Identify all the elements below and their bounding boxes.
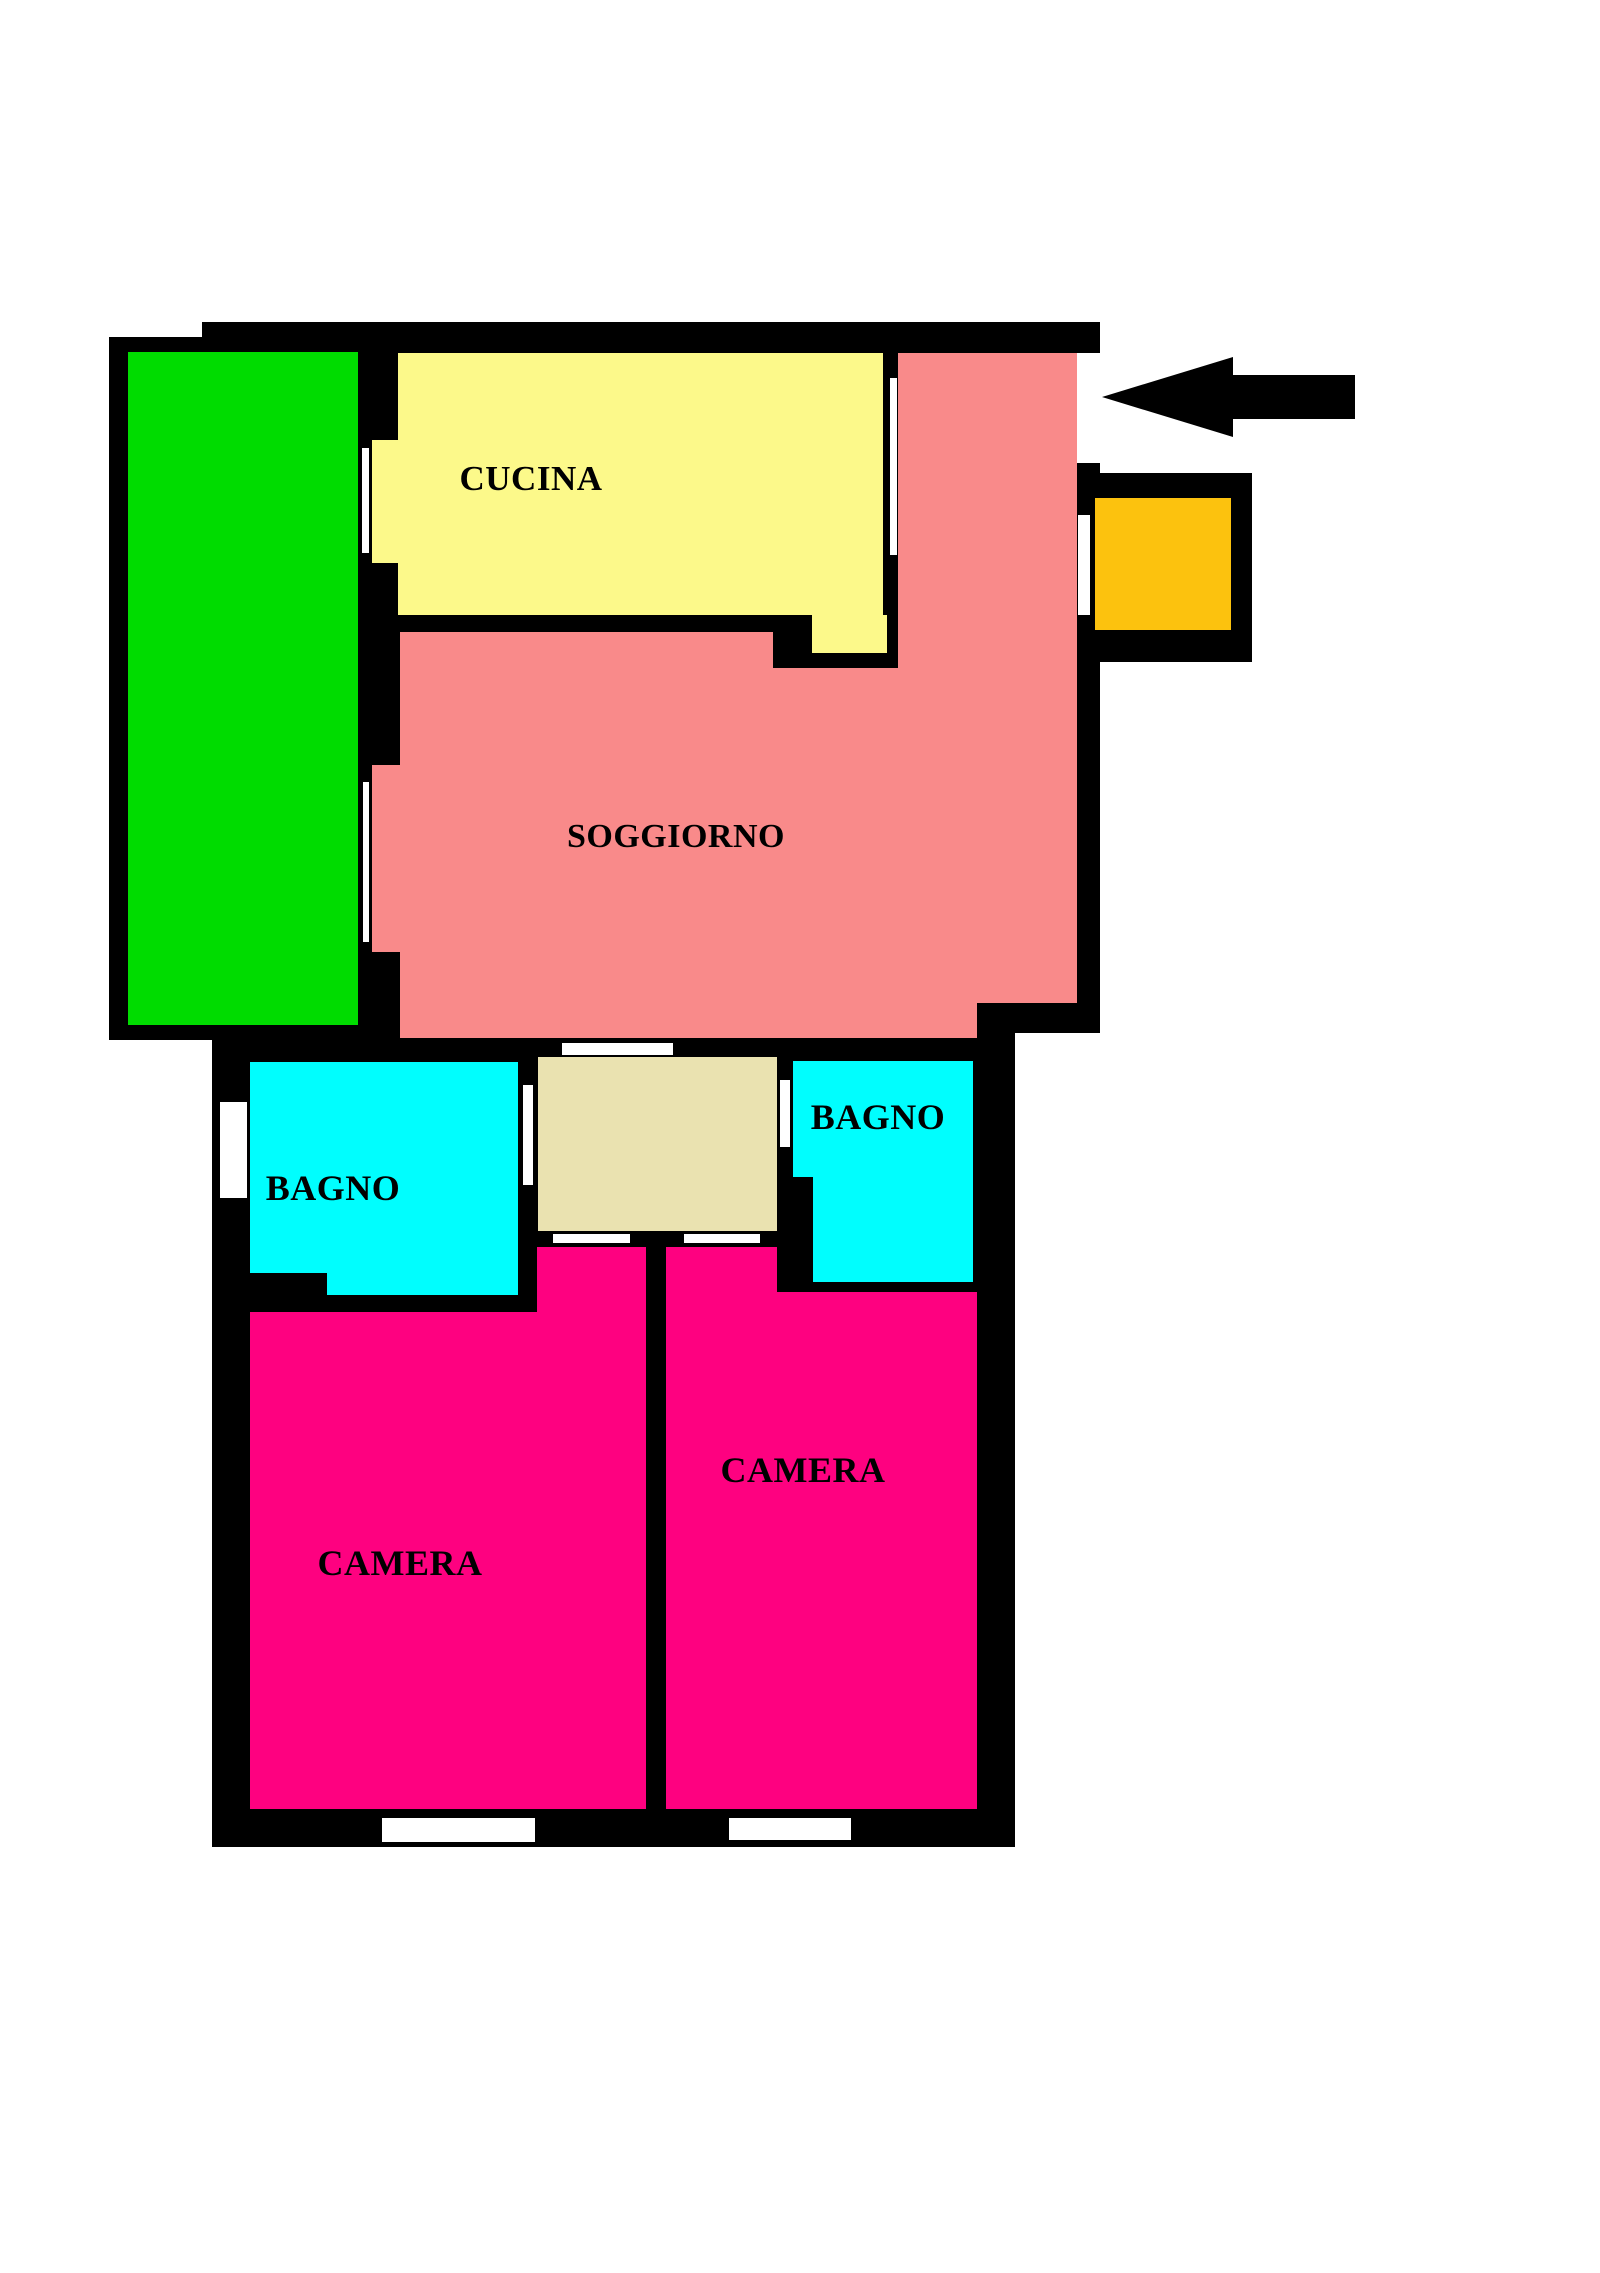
- bathroom-left-part-2: [327, 1273, 518, 1295]
- bathroom-right-label: BAGNO: [811, 1096, 946, 1138]
- balcony-orange: [1095, 498, 1231, 630]
- door-hallway-bathroom-right: [780, 1080, 790, 1147]
- door-hallway-bedroom-left: [553, 1234, 630, 1243]
- living-room-part-3: [898, 353, 977, 1038]
- bathroom-left-label: BAGNO: [266, 1167, 401, 1209]
- bedroom-right-part-2: [666, 1247, 777, 1292]
- door-living-hallway: [562, 1043, 673, 1055]
- window-bedroom-left-bottom: [382, 1818, 535, 1842]
- bathroom-right-part-2: [813, 1177, 973, 1282]
- bedroom-right-label: CAMERA: [721, 1449, 886, 1491]
- kitchen-part-3: [812, 615, 887, 653]
- balcony-green: [128, 352, 358, 1025]
- living-room-part-5: [372, 765, 402, 952]
- outer-wall-left-sliver: [109, 1033, 212, 1040]
- window-living-green-balcony: [363, 782, 369, 942]
- top-left-wall-step: [109, 322, 202, 337]
- window-bathroom-left: [220, 1102, 247, 1198]
- living-room-label: SOGGIORNO: [567, 818, 785, 856]
- kitchen-part-2: [372, 440, 398, 563]
- living-room-part-4: [977, 353, 1077, 1003]
- window-bedroom-right-bottom: [729, 1818, 851, 1840]
- entrance-arrow-head-icon: [1102, 357, 1233, 437]
- bedroom-left-part-2: [537, 1247, 646, 1312]
- hallway: [538, 1057, 777, 1231]
- door-hallway-bathroom-left: [523, 1085, 533, 1185]
- entrance-opening: [1077, 353, 1100, 463]
- door-hallway-bedroom-right: [684, 1234, 760, 1243]
- bedroom-left-label: CAMERA: [318, 1542, 483, 1584]
- kitchen-label: CUCINA: [460, 459, 603, 499]
- bedroom-right-part-1: [666, 1292, 977, 1809]
- window-living-orange-balcony: [1078, 515, 1090, 615]
- door-kitchen-living: [890, 378, 897, 555]
- entrance-arrow-shaft: [1233, 375, 1355, 419]
- floorplan-canvas: CUCINASOGGIORNOBAGNOBAGNOCAMERACAMERA: [0, 0, 1600, 2273]
- living-room-part-2: [773, 668, 898, 1038]
- window-balcony-kitchen: [362, 448, 369, 553]
